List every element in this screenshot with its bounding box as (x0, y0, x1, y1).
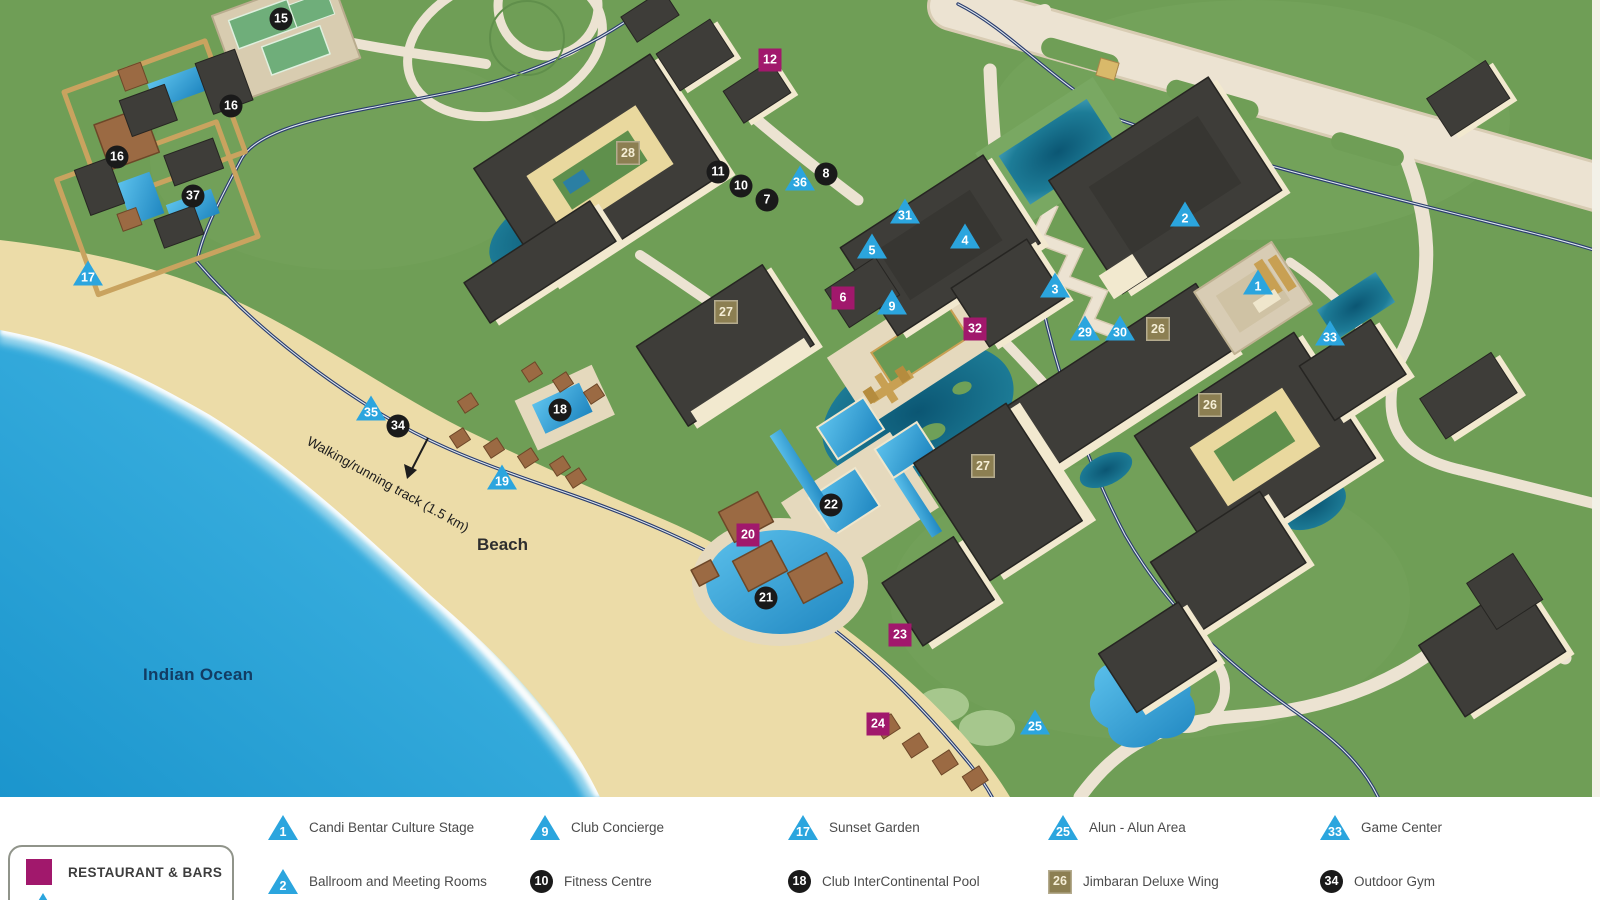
legend-item-26: 26Jimbaran Deluxe Wing (1048, 869, 1219, 894)
restaurant-bars-swatch (26, 859, 52, 885)
legend-icon-tri: 2 (268, 869, 298, 894)
legend-item-9: 9Club Concierge (530, 815, 664, 840)
legend-label: Ballroom and Meeting Rooms (309, 874, 487, 889)
legend-label: Club InterContinental Pool (822, 874, 980, 889)
legend-item-33: 33Game Center (1320, 815, 1442, 840)
legend-item-34: 34Outdoor Gym (1320, 869, 1435, 894)
restaurant-bars-label: RESTAURANT & BARS (68, 865, 222, 880)
restaurant-bars-legend-box: RESTAURANT & BARS (8, 845, 234, 900)
legend-label: Sunset Garden (829, 820, 920, 835)
legend-icon-tri: 25 (1048, 815, 1078, 840)
legend-label: Outdoor Gym (1354, 874, 1435, 889)
legend-strip: 1Candi Bentar Culture Stage2Ballroom and… (0, 797, 1600, 900)
legend-icon-circle: 18 (788, 870, 811, 893)
legend-label: Fitness Centre (564, 874, 652, 889)
legend-item-18: 18Club InterContinental Pool (788, 869, 980, 894)
legend-icon-circle: 34 (1320, 870, 1343, 893)
legend-item-25: 25Alun - Alun Area (1048, 815, 1186, 840)
legend-icon-tri: 9 (530, 815, 560, 840)
legend-icon-sq-gold: 26 (1048, 870, 1072, 894)
legend-item-10: 10Fitness Centre (530, 869, 652, 894)
legend-icon-circle: 10 (530, 870, 553, 893)
legend-icon-tri: 1 (268, 815, 298, 840)
legend-label: Alun - Alun Area (1089, 820, 1186, 835)
ocean-label: Indian Ocean (143, 665, 253, 684)
legend-icon-tri: 33 (1320, 815, 1350, 840)
activities-triangle-icon (28, 893, 58, 900)
legend-label: Jimbaran Deluxe Wing (1083, 874, 1219, 889)
legend-label: Club Concierge (571, 820, 664, 835)
legend-item-17: 17Sunset Garden (788, 815, 920, 840)
legend-label: Candi Bentar Culture Stage (309, 820, 474, 835)
beach-label: Beach (477, 535, 528, 554)
legend-item-2: 2Ballroom and Meeting Rooms (268, 869, 487, 894)
resort-map-page: Indian Ocean Beach Walking/running track… (0, 0, 1600, 900)
legend-icon-tri: 17 (788, 815, 818, 840)
legend-label: Game Center (1361, 820, 1442, 835)
resort-map: Indian Ocean Beach Walking/running track… (0, 0, 1600, 797)
legend-item-1: 1Candi Bentar Culture Stage (268, 815, 474, 840)
